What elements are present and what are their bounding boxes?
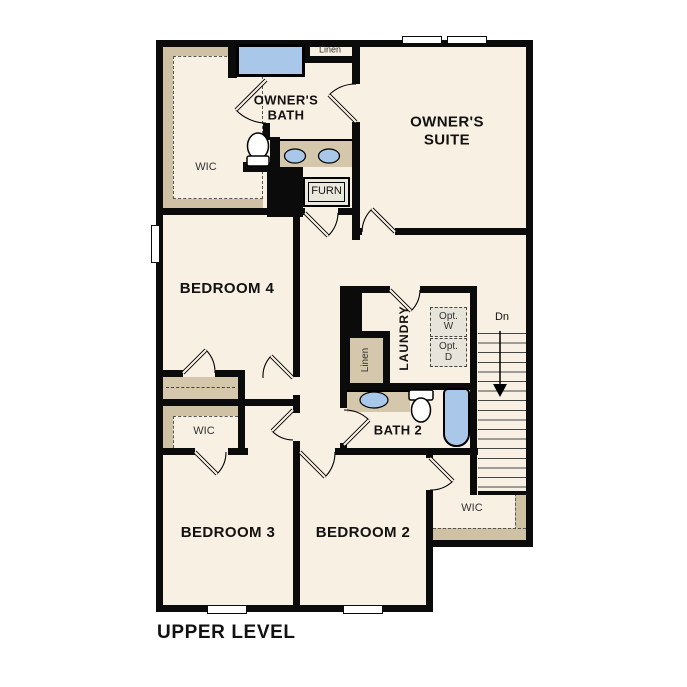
wall-exterior-step [426,540,533,547]
bedroom2-wic-label: WIC [461,503,482,515]
wall-exterior-bottom [156,605,433,612]
bath2-label: BATH 2 [374,422,422,437]
furnace-inner-box: FURN [308,182,345,202]
owners-bath-tub [236,44,305,77]
wall-wic-bath-stub [263,123,270,140]
optional-washer-box: Opt. W [430,307,467,337]
wall-bath2-west-b [340,443,347,455]
staircase [478,333,526,491]
bedroom3-wic-label: WIC [193,426,214,438]
wall-stair-west [470,286,477,495]
bath2-vanity [347,390,410,412]
wall-bedroom4-east [293,215,300,377]
wall-suite-west-b [352,122,360,240]
wall-wic2-west-b [426,490,433,540]
wall-bedroom2-north [335,448,478,455]
bedroom3-label: BEDROOM 3 [181,524,275,542]
bath2-tub [443,388,470,447]
window-suite-2 [447,36,487,44]
owners-suite-label: OWNER'S SUITE [410,113,484,148]
wall-suite-west-a [352,47,360,84]
owners-bath-label: OWNER'S BATH [254,93,318,124]
wall-linen-hall-north [362,331,390,338]
stair-bottom-edge [478,491,526,495]
owners-wic-carpet-inset [173,56,263,199]
plan-title: UPPER LEVEL [157,622,296,644]
wall-linen-hall-west [340,338,350,383]
owners-bath-vanity [278,139,352,167]
chase-hall [340,293,362,338]
laundry-label: LAUNDRY [397,305,411,370]
window-bedroom4 [151,225,160,263]
furnace-unit: FURN [303,177,350,207]
optional-dryer-box: Opt. D [430,338,467,367]
bedroom4-label: BEDROOM 4 [180,280,274,298]
wall-laundry-north-a [340,286,390,293]
hall-closet-strip [163,377,238,399]
bedroom2-wic-band-bottom [433,528,526,540]
wall-suite-south-a [352,228,362,235]
wall-wic3-south-a [163,448,195,455]
window-bedroom3 [207,605,247,614]
bedroom2-label: BEDROOM 2 [316,524,410,542]
wall-bedroom-divider [293,448,300,605]
wall-exterior-right [526,40,533,547]
chase-furnace [267,167,303,217]
linen-bath-label: Linen [319,45,341,54]
wall-closet-east [238,370,245,448]
linen-hall-label: Linen [361,348,372,372]
wall-laundry-north-b [420,286,477,293]
optional-washer-label: Opt. W [439,312,458,333]
optional-dryer-label: Opt. D [439,342,458,363]
floor-plan: Opt. W Opt. D [0,0,687,687]
wall-wic3-south-b [228,448,248,455]
closet-shelf-line [166,387,235,388]
wall-hall-nook [163,399,297,406]
wall-linen-bath-bottom [310,56,352,63]
wall-bath2-west-a [340,390,347,408]
furnace-label: FURN [311,186,342,198]
window-suite-1 [402,36,442,44]
wall-bedroom4-south-a [163,370,183,377]
wall-nook-stub-upper [293,395,300,413]
wall-wic2-west-a [426,448,433,458]
wall-linen-hall-east [383,338,390,383]
stair-dn-label: Dn [495,312,509,324]
wall-suite-south-b [395,228,533,235]
wall-exterior-left [156,40,163,612]
window-bedroom2 [343,605,383,614]
wall-exterior-right-lower [426,540,433,612]
owners-wic-label: WIC [195,162,216,174]
